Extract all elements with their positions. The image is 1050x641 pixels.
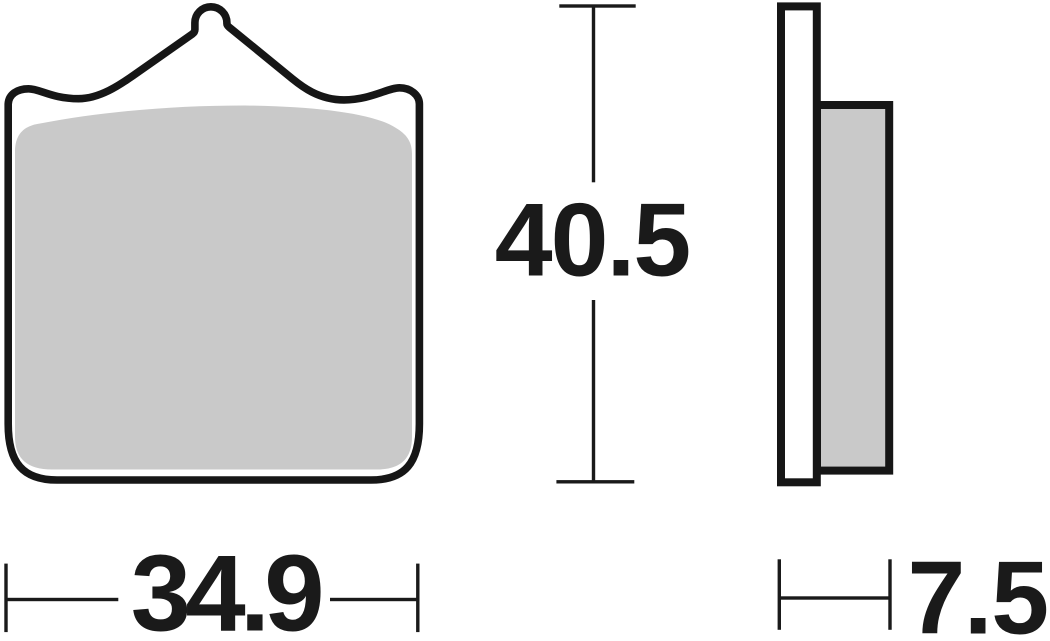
svg-text:7.5: 7.5: [907, 541, 1047, 641]
svg-text:34.9: 34.9: [131, 533, 321, 641]
svg-text:40.5: 40.5: [495, 183, 689, 299]
